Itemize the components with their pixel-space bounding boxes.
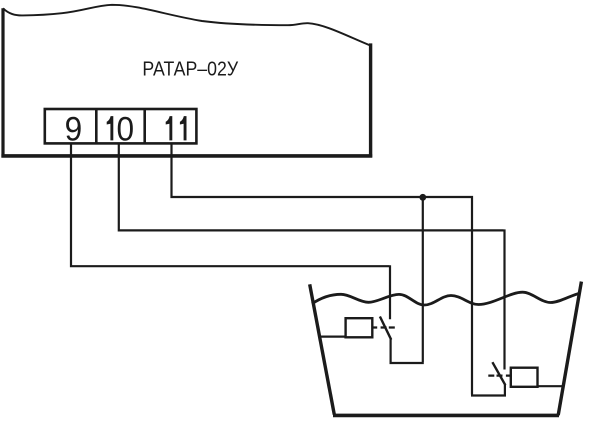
svg-text:РАТАР–02У: РАТАР–02У — [142, 59, 239, 81]
svg-text:0: 0 — [117, 109, 135, 147]
svg-text:9: 9 — [65, 109, 83, 147]
